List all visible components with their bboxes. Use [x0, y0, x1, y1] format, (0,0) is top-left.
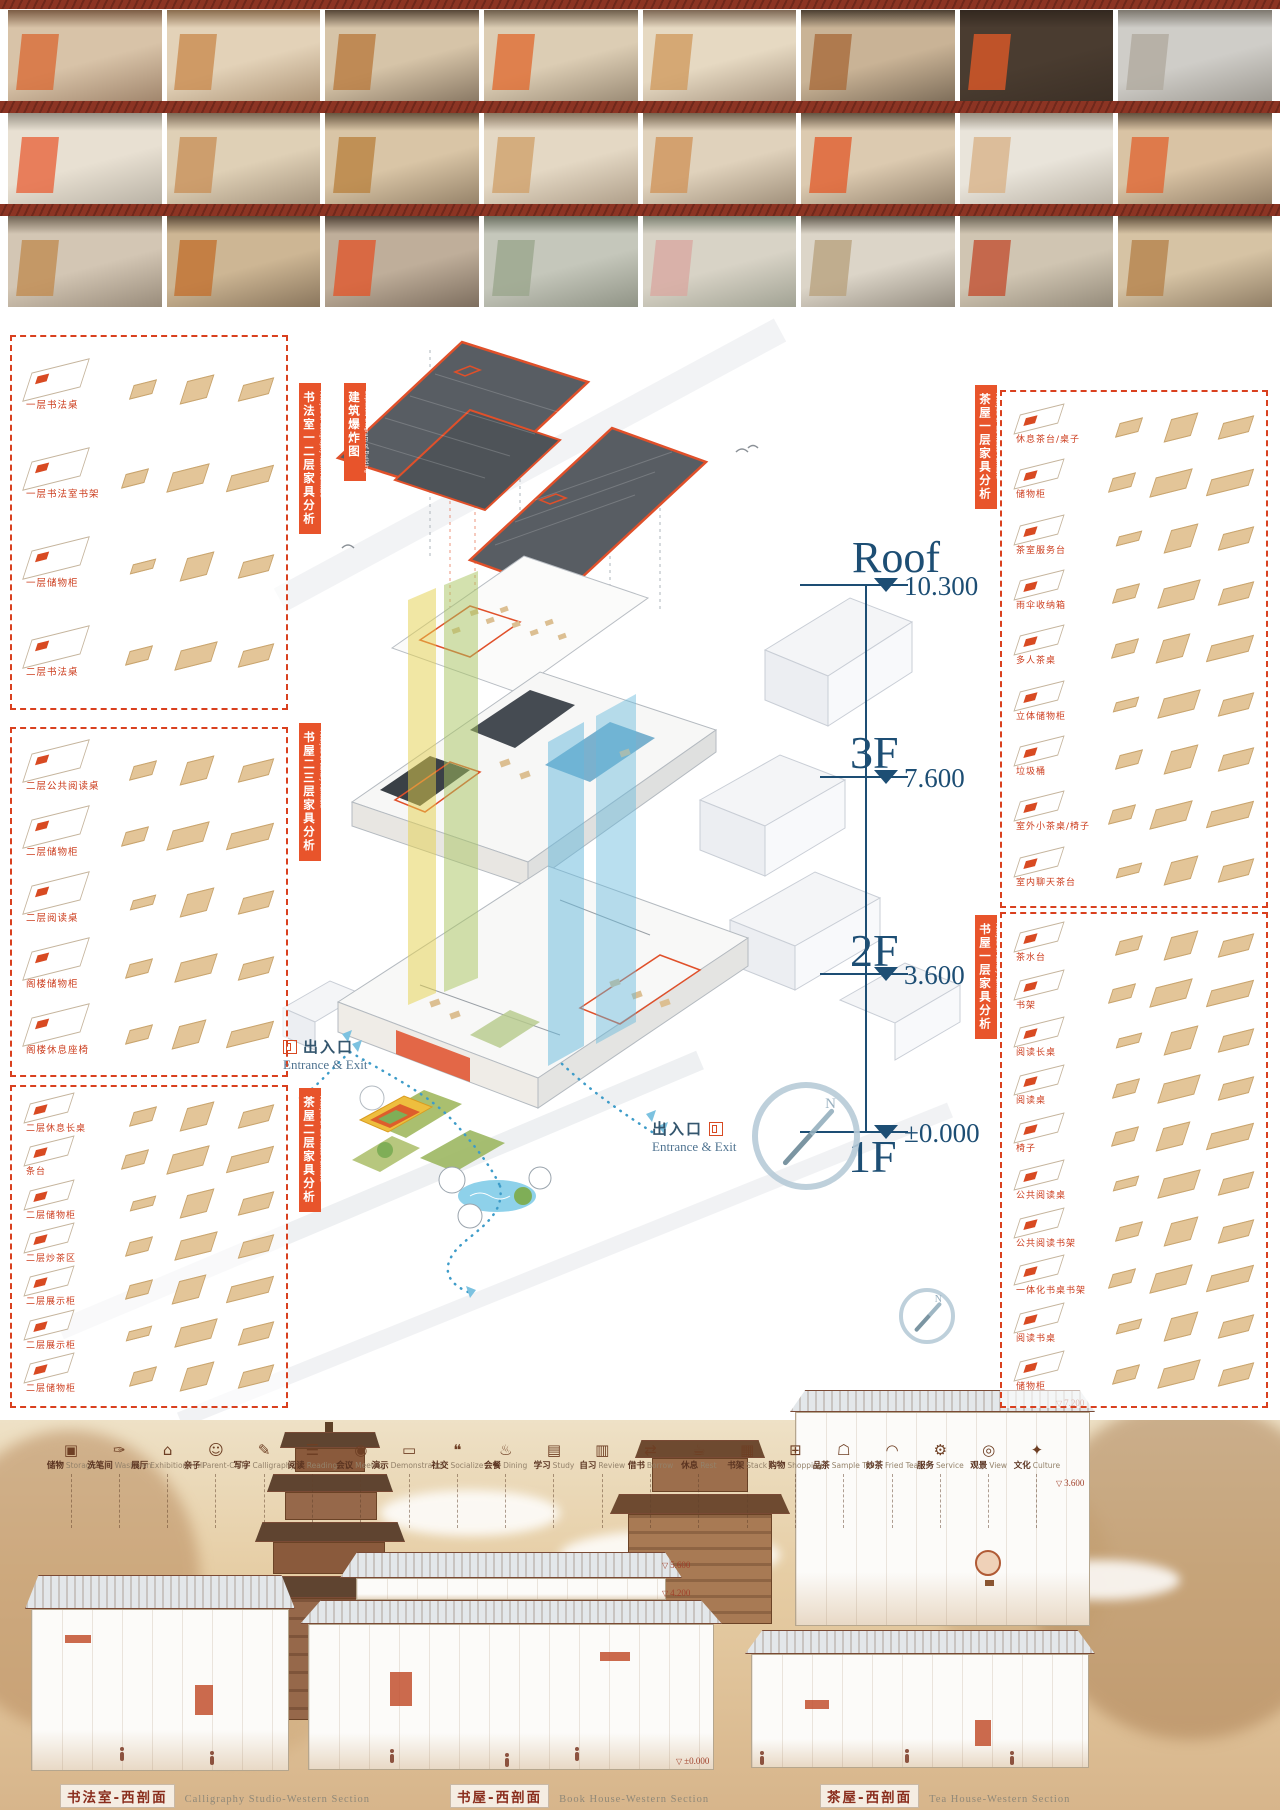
program-icon-item: ◎ 观景View: [966, 1441, 1012, 1528]
photo-row-2: [8, 113, 1272, 204]
furniture-row: 储物柜: [1012, 1357, 1256, 1392]
entrance-zh: 出入口: [303, 1036, 354, 1057]
furniture-glyph: [226, 1020, 274, 1047]
program-label-zh: 炒茶: [866, 1461, 883, 1471]
plan-glyph: [22, 805, 90, 849]
plan-glyph: [1013, 1302, 1064, 1333]
program-label-zh: 阅读: [288, 1461, 305, 1471]
furniture-glyph: [174, 1232, 217, 1261]
furniture-glyph: [1116, 1319, 1143, 1335]
furniture-label: 椅子: [1016, 1141, 1036, 1154]
furniture-glyph: [226, 1276, 274, 1303]
furniture-label: 二层储物柜: [26, 1381, 76, 1394]
furniture-label: 二层展示柜: [26, 1294, 76, 1307]
render-photo: [325, 113, 479, 204]
plan-glyph: [1013, 1064, 1064, 1095]
section-calligraphy-studio: [25, 1575, 295, 1775]
section-title-zh: 书法室-西剖面: [60, 1784, 175, 1808]
render-photo: [325, 216, 479, 307]
figure: [575, 1752, 579, 1761]
render-photo: [8, 113, 162, 204]
furniture-glyph: [125, 958, 153, 978]
program-label-en: Service: [936, 1461, 964, 1470]
program-icon: ◉: [354, 1441, 367, 1459]
program-icon-item: ▥ 自习Review: [579, 1441, 625, 1528]
furniture-label: 二层休息长桌: [26, 1121, 86, 1134]
program-label-zh: 文化: [1014, 1461, 1031, 1471]
furniture-label: 休息茶台/桌子: [1016, 432, 1080, 445]
program-icon-item: ⚙ 服务Service: [917, 1441, 963, 1528]
program-label-zh: 演示: [372, 1461, 389, 1471]
furniture-glyph: [1206, 801, 1254, 828]
compass-north-label: N: [935, 1294, 942, 1305]
program-icon-item: ❝ 社交Socialize: [434, 1441, 480, 1528]
render-photo: [960, 113, 1114, 204]
section-tea-house-front: [745, 1630, 1095, 1772]
furniture-glyph: [1163, 931, 1198, 961]
render-photo: [325, 10, 479, 101]
furniture-glyph: [129, 1106, 157, 1126]
program-label-zh: 洗笔间: [87, 1461, 113, 1471]
furniture-glyph: [1206, 1265, 1254, 1292]
furniture-label: 阅读桌: [1016, 1093, 1046, 1106]
furniture-row: 垃圾桶: [1012, 742, 1256, 777]
furniture-glyph: [238, 377, 275, 402]
compass: N: [752, 1082, 860, 1190]
figure: [1010, 1756, 1014, 1765]
program-label-en: Rest: [700, 1461, 716, 1470]
furniture-glyph: [1112, 1364, 1140, 1384]
section-title-en: Book House-Western Section: [559, 1794, 709, 1805]
furniture-glyph: [1163, 1311, 1198, 1341]
program-icon: ☺: [208, 1441, 224, 1459]
furniture-glyph: [1149, 800, 1192, 829]
furniture-row: 二层炒茶区: [22, 1229, 276, 1264]
program-icon: ▥: [595, 1441, 609, 1459]
presentation-board: 5.600 4.200 ±0.000 7.200 3.600 ▣ 储物Stora…: [0, 0, 1280, 1810]
render-photo: [484, 113, 638, 204]
program-icon-item: ▣ 储物Storage: [48, 1441, 94, 1528]
furniture-row: 二层储物柜: [22, 814, 276, 858]
furniture-row: 二层休息长桌: [22, 1099, 276, 1134]
program-icon-item: ▦ 书架Stack: [724, 1441, 770, 1528]
program-icon-item: ▤ 学习Study: [531, 1441, 577, 1528]
leader-line: [602, 1474, 603, 1528]
figure: [390, 1754, 394, 1763]
furniture-glyph: [1218, 1362, 1255, 1387]
furniture-label: 室内聊天茶台: [1016, 875, 1076, 888]
entrance-en: Entrance & Exit: [652, 1139, 736, 1155]
program-icon: ▭: [402, 1441, 416, 1459]
furniture-glyph: [1116, 530, 1143, 546]
location-plan: 一层储物柜: [26, 545, 102, 589]
entrance-zh: 出入口: [652, 1118, 703, 1139]
program-icon-item: ◠ 炒茶Fried Tea: [869, 1441, 915, 1528]
section-title-calligraphy: 书法室-西剖面 Calligraphy Studio-Western Secti…: [60, 1784, 370, 1808]
figure: [760, 1756, 764, 1765]
panel-tea-furniture-1f: 休息茶台/桌子 储物柜 茶室服务台: [1000, 390, 1268, 908]
plan-glyph: [1013, 514, 1064, 545]
furniture-glyph: [238, 1234, 275, 1259]
furniture-glyph: [1218, 747, 1255, 772]
leader-line: [409, 1474, 410, 1528]
furniture-glyph: [166, 463, 209, 492]
program-icon: ⇄: [644, 1441, 657, 1459]
furniture-label: 雨伞收纳箱: [1016, 598, 1066, 611]
furniture-glyph: [1157, 579, 1200, 608]
program-icon-item: ♨ 会餐Dining: [483, 1441, 529, 1528]
plan-glyph: [23, 1266, 74, 1297]
program-label-en: Culture: [1033, 1461, 1060, 1470]
leader-line: [119, 1474, 120, 1528]
program-icon-item: ✎ 写字Calligraphy: [241, 1441, 287, 1528]
furniture-glyph: [1206, 980, 1254, 1007]
plan-glyph: [1013, 625, 1064, 656]
furniture-glyph: [1112, 583, 1140, 603]
program-icon-row: ▣ 储物Storage ✑ 洗笔间Wash pen ⌂ 展厅Exhibition…: [48, 1441, 1060, 1528]
program-icon-item: ✑ 洗笔间Wash pen: [96, 1441, 142, 1528]
plan-glyph: [23, 1352, 74, 1383]
furniture-row: 二层储物柜: [22, 1359, 276, 1394]
compass-needle: [914, 1302, 942, 1333]
plan-glyph: [23, 1136, 74, 1167]
elevation-mark: 4.200: [662, 1588, 690, 1598]
program-label-en: Fried Tea: [885, 1461, 918, 1470]
program-label-zh: 学习: [534, 1461, 551, 1471]
program-label-zh: 社交: [431, 1461, 448, 1471]
furniture-row: 公共阅读桌: [1012, 1166, 1256, 1201]
furniture-label: 垃圾桶: [1016, 764, 1046, 777]
tab-label-en: Analysis of Tea House Furniture: [994, 393, 1000, 479]
plan-glyph: [23, 1179, 74, 1210]
furniture-glyph: [238, 1321, 275, 1346]
furniture-glyph: [129, 760, 157, 780]
render-photo: [643, 216, 797, 307]
section-book-house: [300, 1552, 722, 1775]
furniture-glyph: [1115, 417, 1143, 437]
program-icon-item: ☰ 阅读Reading: [289, 1441, 335, 1528]
furniture-glyph: [1218, 1314, 1255, 1339]
leader-line: [843, 1474, 844, 1528]
program-label-zh: 会议: [336, 1461, 353, 1471]
plan-glyph: [1013, 680, 1064, 711]
furniture-glyph: [1163, 1216, 1198, 1246]
program-label-zh: 储物: [47, 1461, 64, 1471]
render-photo: [801, 216, 955, 307]
program-icon: ♨: [499, 1441, 512, 1459]
plan-glyph: [22, 625, 90, 669]
furniture-label: 二层储物柜: [26, 1208, 76, 1221]
section-title-en: Calligraphy Studio-Western Section: [185, 1794, 370, 1805]
furniture-glyph: [121, 1150, 149, 1170]
tab-tea-analysis-1f: 茶屋一层家具分析 Analysis of Tea House Furniture: [975, 385, 997, 509]
program-label-zh: 观景: [970, 1461, 987, 1471]
leader-line: [1036, 1474, 1037, 1528]
render-photo: [1118, 10, 1272, 101]
render-photo: [643, 113, 797, 204]
level-elev-roof: 10.300: [904, 571, 978, 601]
elevation-mark: ±0.000: [676, 1756, 709, 1766]
furniture-glyph: [180, 552, 215, 582]
furniture-glyph: [1218, 415, 1255, 440]
program-icon: ☖: [837, 1441, 850, 1459]
furniture-row: 公共阅读书架: [1012, 1214, 1256, 1249]
furniture-row: 茶室服务台: [1012, 521, 1256, 556]
furniture-glyph: [172, 1275, 207, 1305]
furniture-glyph: [1163, 523, 1198, 553]
furniture-row: 条台: [22, 1142, 276, 1177]
render-photo: [167, 10, 321, 101]
furniture-glyph: [238, 956, 275, 981]
plan-glyph: [1013, 1112, 1064, 1143]
furniture-label: 公共阅读桌: [1016, 1188, 1066, 1201]
plan-glyph: [1013, 1350, 1064, 1381]
plan-glyph: [22, 739, 90, 783]
furniture-glyph: [238, 890, 275, 915]
furniture-glyph: [1115, 1221, 1143, 1241]
program-label-en: Borrow: [647, 1461, 673, 1470]
program-icon-item: ☕ 休息Rest: [676, 1441, 722, 1528]
furniture-row: 阁楼休息座椅: [22, 1012, 276, 1056]
furniture-glyph: [1157, 1169, 1200, 1198]
furniture-glyph: [1113, 1176, 1140, 1192]
furniture-glyph: [1218, 1076, 1255, 1101]
plan-glyph: [1013, 846, 1064, 877]
furniture-glyph: [126, 1325, 153, 1341]
furniture-glyph: [129, 379, 157, 399]
render-photo: [167, 113, 321, 204]
entrance-icon: [283, 1040, 297, 1054]
plan-glyph: [22, 871, 90, 915]
furniture-glyph: [172, 1019, 207, 1049]
leader-line: [71, 1474, 72, 1528]
render-photo: [960, 216, 1114, 307]
program-label-zh: 展厅: [131, 1461, 148, 1471]
program-icon: ▤: [547, 1441, 561, 1459]
section-title-en: Tea House-Western Section: [929, 1794, 1070, 1805]
furniture-glyph: [238, 643, 275, 668]
plan-glyph: [22, 1003, 90, 1047]
furniture-label: 二层公共阅读桌: [26, 778, 100, 792]
furniture-glyph: [1206, 469, 1254, 496]
render-photo: [960, 10, 1114, 101]
program-label-zh: 品茶: [813, 1461, 830, 1471]
leader-line: [747, 1474, 748, 1528]
leader-line: [215, 1474, 216, 1528]
render-photo: [484, 216, 638, 307]
render-photo: [484, 10, 638, 101]
figure: [120, 1752, 124, 1761]
plan-glyph: [1013, 1255, 1064, 1286]
location-plan: 一层书法桌: [26, 367, 102, 411]
furniture-label: 二层储物柜: [26, 844, 79, 858]
program-icon: ▦: [740, 1441, 754, 1459]
tab-label-en: Analysis of Calligraphy Room Furniture: [318, 391, 324, 497]
furniture-glyph: [1108, 805, 1136, 825]
furniture-glyph: [1111, 639, 1139, 659]
panel-library-furniture-upper: 二层公共阅读桌 二层储物柜 二层阅读桌: [10, 727, 288, 1077]
furniture-label: 阅读长桌: [1016, 1045, 1056, 1058]
furniture-glyph: [129, 559, 156, 575]
furniture-row: 一层书法桌: [22, 367, 276, 411]
tab-label-zh: 茶屋一层家具分析: [977, 393, 993, 501]
figure: [905, 1754, 909, 1763]
furniture-label: 公共阅读书架: [1016, 1236, 1076, 1249]
furniture-glyph: [180, 374, 215, 404]
render-photo: [8, 216, 162, 307]
furniture-glyph: [1218, 934, 1255, 959]
location-plan: 二层书法桌: [26, 634, 102, 678]
furniture-glyph: [1111, 1126, 1139, 1146]
figure: [210, 1756, 214, 1765]
render-photo: [801, 113, 955, 204]
leader-line: [698, 1474, 699, 1528]
furniture-glyph: [1163, 744, 1198, 774]
furniture-row: 二层储物柜: [22, 1186, 276, 1221]
furniture-glyph: [125, 1280, 153, 1300]
panel-calligraphy-furniture: 一层书法桌 一层书法室书架 一层储物柜: [10, 335, 288, 710]
furniture-glyph: [180, 1188, 215, 1218]
program-icon-item: ⇄ 借书Borrow: [628, 1441, 674, 1528]
tab-label-en: Analysis of Library Furniture: [994, 923, 1000, 1000]
furniture-label: 一层书法室书架: [26, 486, 100, 500]
plan-glyph: [1013, 922, 1064, 953]
tab-library-analysis-upper: 书屋二三层家具分析 Analysis of Library Furniture: [299, 723, 321, 861]
furniture-label: 茶水台: [1016, 950, 1046, 963]
entrance-en: Entrance & Exit: [283, 1057, 367, 1073]
leader-line: [940, 1474, 941, 1528]
furniture-row: 室外小茶桌/椅子: [1012, 797, 1256, 832]
plan-glyph: [23, 1309, 74, 1340]
furniture-glyph: [1108, 473, 1136, 493]
tab-tea-analysis-2f: 茶屋二层家具分析 Analysis of Tea House Furniture: [299, 1088, 321, 1212]
furniture-glyph: [129, 894, 156, 910]
leader-line: [553, 1474, 554, 1528]
entrance-label-east: 出入口 Entrance & Exit: [652, 1118, 736, 1155]
program-icon: ✎: [258, 1441, 271, 1459]
photo-row-1: [8, 10, 1272, 101]
furniture-glyph: [129, 1195, 156, 1211]
strip-divider: [0, 0, 1280, 9]
furniture-glyph: [238, 758, 275, 783]
plan-glyph: [1013, 569, 1064, 600]
compass-needle: [782, 1108, 835, 1166]
furniture-row: 椅子: [1012, 1119, 1256, 1154]
tab-label-en: Analysis of Tea House Furniture: [318, 1096, 324, 1182]
program-label-zh: 自习: [579, 1461, 596, 1471]
furniture-glyph: [180, 1361, 215, 1391]
entrance-label-west: 出入口 Entrance & Exit: [283, 1036, 367, 1073]
furniture-glyph: [1113, 696, 1140, 712]
furniture-row: 阅读书桌: [1012, 1309, 1256, 1344]
furniture-glyph: [1163, 855, 1198, 885]
courtyard: [352, 1086, 551, 1228]
level-elev-3f: 7.600: [904, 763, 965, 793]
furniture-label: 书架: [1016, 998, 1036, 1011]
hot-air-balloon: [975, 1550, 1001, 1576]
furniture-label: 一层书法桌: [26, 397, 79, 411]
section-title-book-house: 书屋-西剖面 Book House-Western Section: [450, 1784, 709, 1808]
program-label-en: Dining: [503, 1461, 527, 1470]
furniture-glyph: [1157, 690, 1200, 719]
program-label-zh: 借书: [628, 1461, 645, 1471]
panel-library-furniture-1f: 茶水台 书架 阅读长桌: [1000, 912, 1268, 1408]
furniture-glyph: [1163, 1026, 1198, 1056]
furniture-label: 多人茶桌: [1016, 653, 1056, 666]
furniture-glyph: [1218, 1029, 1255, 1054]
furniture-label: 二层炒茶区: [26, 1251, 76, 1264]
program-label-en: Study: [553, 1461, 575, 1470]
compass-small: N: [899, 1288, 955, 1344]
furniture-glyph: [238, 1364, 275, 1389]
furniture-glyph: [1206, 1122, 1254, 1149]
tab-label-en: Exploded Diagram of Building: [363, 391, 369, 473]
furniture-glyph: [1157, 1359, 1200, 1388]
furniture-glyph: [1149, 468, 1192, 497]
furniture-label: 一层储物柜: [26, 575, 79, 589]
furniture-label: 条台: [26, 1164, 46, 1177]
program-label-zh: 亲子: [184, 1461, 201, 1471]
program-label-en: View: [989, 1461, 1007, 1470]
location-plan: 一层书法室书架: [26, 456, 102, 500]
program-label-zh: 书架: [727, 1461, 744, 1471]
plan-glyph: [1013, 459, 1064, 490]
render-photo: [643, 10, 797, 101]
furniture-glyph: [1218, 858, 1255, 883]
level-elev-2f: 3.600: [904, 960, 965, 990]
program-icon: ✦: [1031, 1441, 1044, 1459]
program-label-en: Reading: [307, 1461, 337, 1470]
furniture-row: 书架: [1012, 976, 1256, 1011]
program-icon: ◎: [982, 1441, 995, 1459]
furniture-row: 一层书法室书架: [22, 456, 276, 500]
furniture-glyph: [1206, 635, 1254, 662]
furniture-glyph: [1155, 634, 1190, 664]
furniture-glyph: [125, 1236, 153, 1256]
furniture-glyph: [129, 1366, 157, 1386]
furniture-row: 储物柜: [1012, 465, 1256, 500]
program-icon: ❝: [453, 1441, 461, 1459]
plan-glyph: [22, 536, 90, 580]
compass-north-label: N: [825, 1096, 836, 1113]
program-label-zh: 写字: [233, 1461, 250, 1471]
furniture-glyph: [1115, 749, 1143, 769]
program-label-en: Review: [598, 1461, 625, 1470]
leader-line: [795, 1474, 796, 1528]
furniture-glyph: [1218, 1219, 1255, 1244]
furniture-glyph: [226, 1146, 274, 1173]
furniture-row: 阅读桌: [1012, 1071, 1256, 1106]
furniture-glyph: [180, 755, 215, 785]
elevation-mark: 5.600: [662, 1560, 690, 1570]
furniture-label: 储物柜: [1016, 1379, 1046, 1392]
furniture-glyph: [125, 645, 153, 665]
render-photo: [167, 216, 321, 307]
program-icon: ⊞: [789, 1441, 802, 1459]
furniture-label: 二层阅读桌: [26, 910, 79, 924]
plan-glyph: [23, 1222, 74, 1253]
furniture-glyph: [180, 887, 215, 917]
plan-glyph: [22, 937, 90, 981]
tab-label-en: Analysis of Library Furniture: [318, 731, 324, 808]
leader-line: [360, 1474, 361, 1528]
furniture-glyph: [226, 822, 274, 849]
furniture-row: 室内聊天茶台: [1012, 853, 1256, 888]
furniture-glyph: [1108, 983, 1136, 1003]
furniture-label: 茶室服务台: [1016, 543, 1066, 556]
furniture-glyph: [226, 464, 274, 491]
program-label-en: Stack: [746, 1461, 767, 1470]
